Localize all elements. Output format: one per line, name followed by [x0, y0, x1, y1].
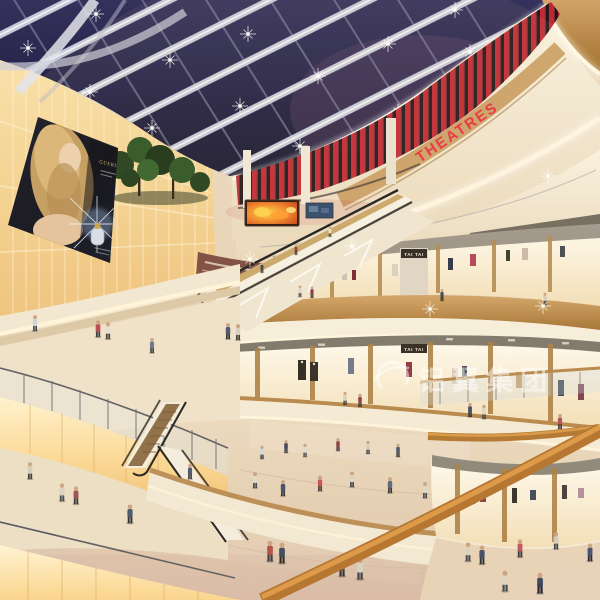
watermark-text: 铝翼集团 — [418, 365, 554, 397]
ambient-glow — [0, 0, 600, 600]
mall-atrium-photo: GUERLAIN — [0, 0, 600, 600]
mall-atrium-scene: GUERLAIN — [0, 0, 600, 600]
